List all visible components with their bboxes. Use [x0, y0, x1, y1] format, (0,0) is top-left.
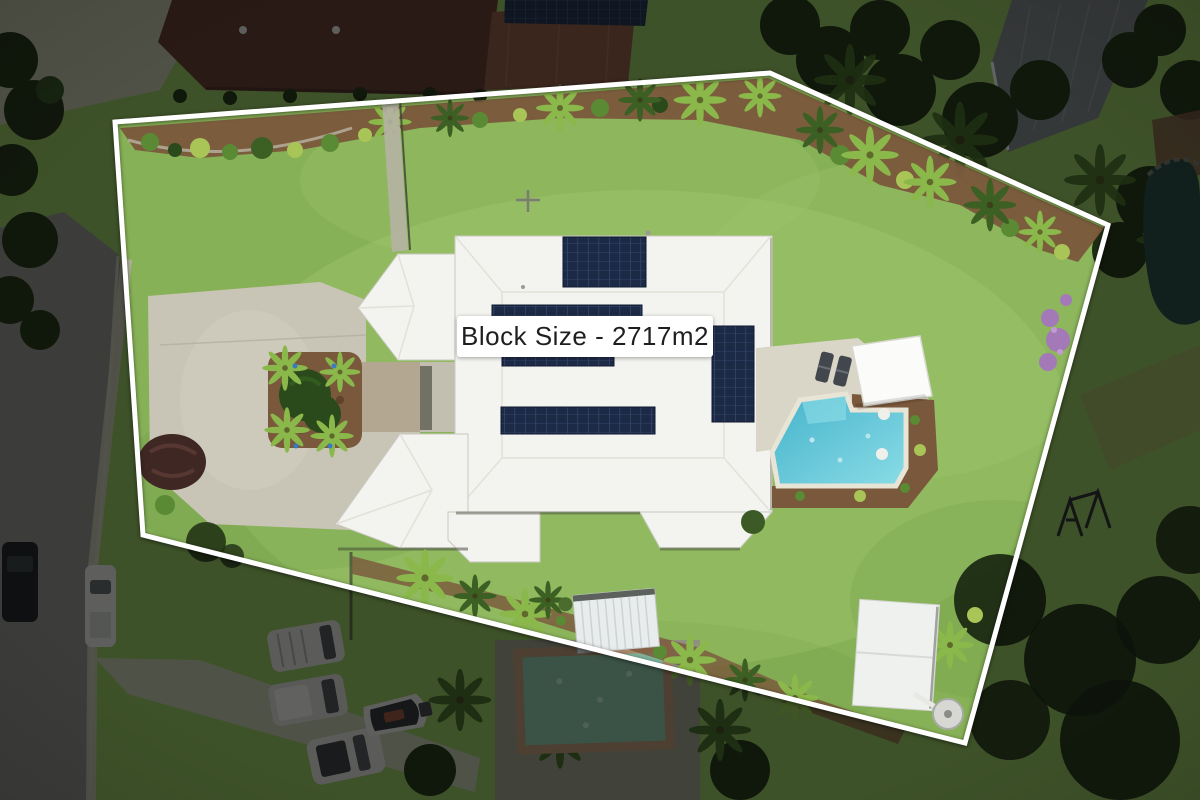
vignette [0, 0, 1200, 800]
label-text: Block Size - 2717m2 [461, 321, 709, 351]
block-size-label: Block Size - 2717m2 [457, 316, 713, 357]
aerial-property-photo: Block Size - 2717m2 [0, 0, 1200, 800]
